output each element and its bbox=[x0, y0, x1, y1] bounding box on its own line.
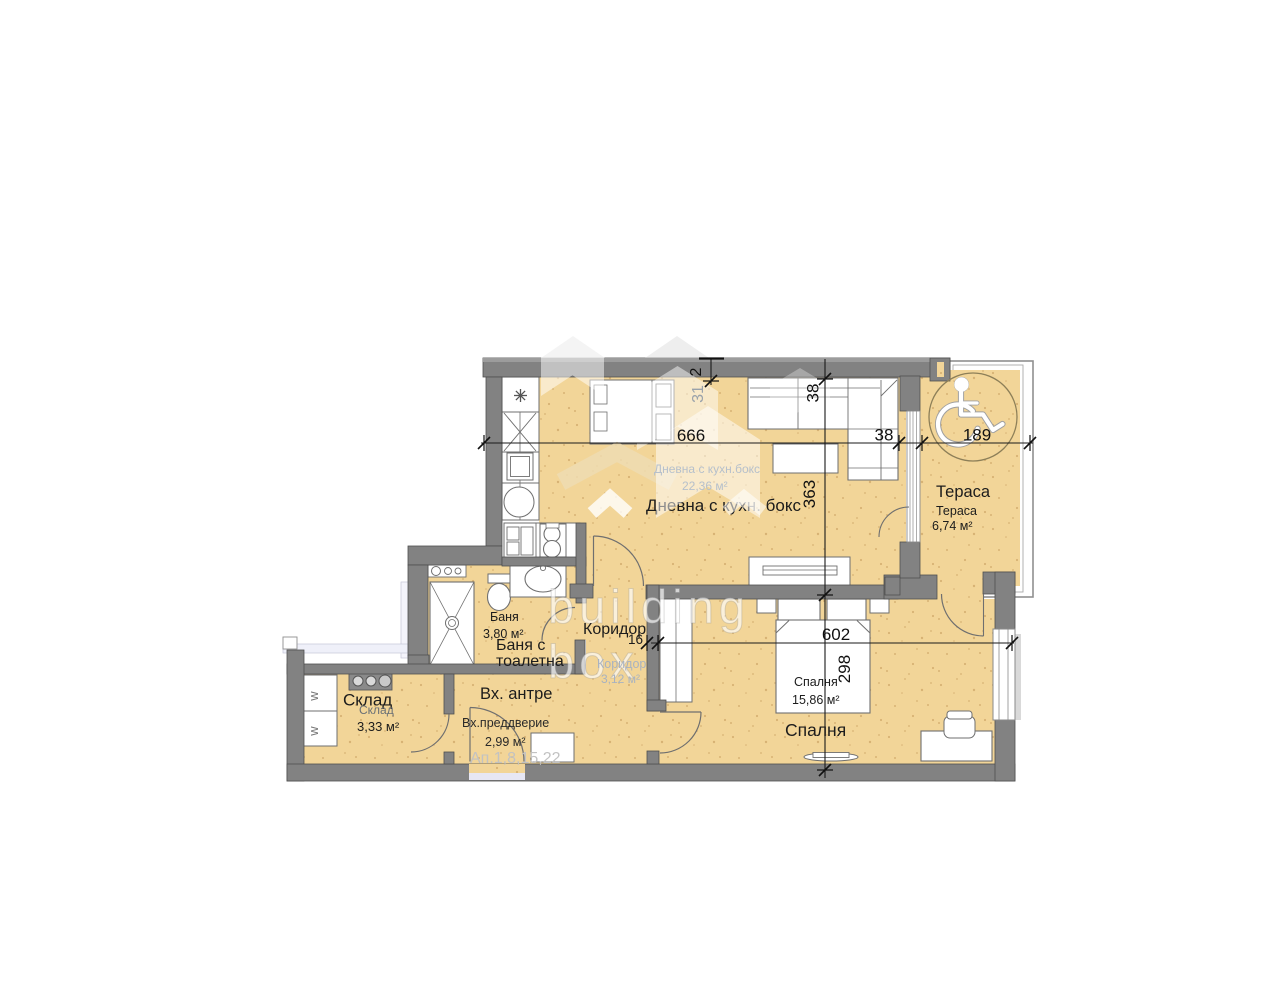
svg-text:Спалня: Спалня bbox=[785, 720, 846, 740]
svg-text:Дневна с кухн.бокс: Дневна с кухн.бокс bbox=[654, 462, 760, 476]
svg-text:2,99 м²: 2,99 м² bbox=[485, 735, 526, 749]
svg-text:Вх.преддверие: Вх.преддверие bbox=[462, 716, 549, 730]
svg-text:666: 666 bbox=[677, 426, 705, 445]
svg-text:3,80 м²: 3,80 м² bbox=[483, 627, 524, 641]
svg-text:Вх. антре: Вх. антре bbox=[480, 685, 552, 703]
svg-text:Ап.1,8,15,22: Ап.1,8,15,22 bbox=[470, 750, 561, 767]
svg-text:189: 189 bbox=[963, 426, 991, 445]
svg-text:Коридор: Коридор bbox=[597, 657, 646, 671]
svg-text:31: 31 bbox=[690, 385, 707, 403]
svg-text:Баня: Баня bbox=[490, 610, 519, 624]
svg-text:building: building bbox=[548, 580, 750, 633]
svg-text:602: 602 bbox=[822, 625, 850, 644]
svg-text:Тераса: Тераса bbox=[936, 504, 977, 518]
svg-text:298: 298 bbox=[835, 655, 854, 683]
svg-text:тоалетна: тоалетна bbox=[496, 653, 564, 670]
svg-text:38: 38 bbox=[875, 426, 894, 445]
svg-text:w: w bbox=[306, 691, 321, 702]
svg-text:15,86 м²: 15,86 м² bbox=[792, 693, 840, 707]
svg-text:2: 2 bbox=[688, 367, 705, 376]
svg-text:Склад: Склад bbox=[359, 703, 394, 717]
svg-text:w: w bbox=[306, 726, 321, 737]
svg-text:38: 38 bbox=[804, 384, 823, 403]
svg-text:16: 16 bbox=[628, 632, 643, 647]
svg-text:6,74 м²: 6,74 м² bbox=[932, 519, 973, 533]
svg-text:3,33 м²: 3,33 м² bbox=[357, 719, 400, 734]
svg-text:Спалня: Спалня bbox=[794, 675, 838, 689]
svg-text:3,12 м²: 3,12 м² bbox=[601, 672, 640, 686]
svg-text:Тераса: Тераса bbox=[936, 483, 991, 501]
svg-text:22,36 м²: 22,36 м² bbox=[682, 479, 728, 493]
svg-text:363: 363 bbox=[800, 480, 819, 508]
